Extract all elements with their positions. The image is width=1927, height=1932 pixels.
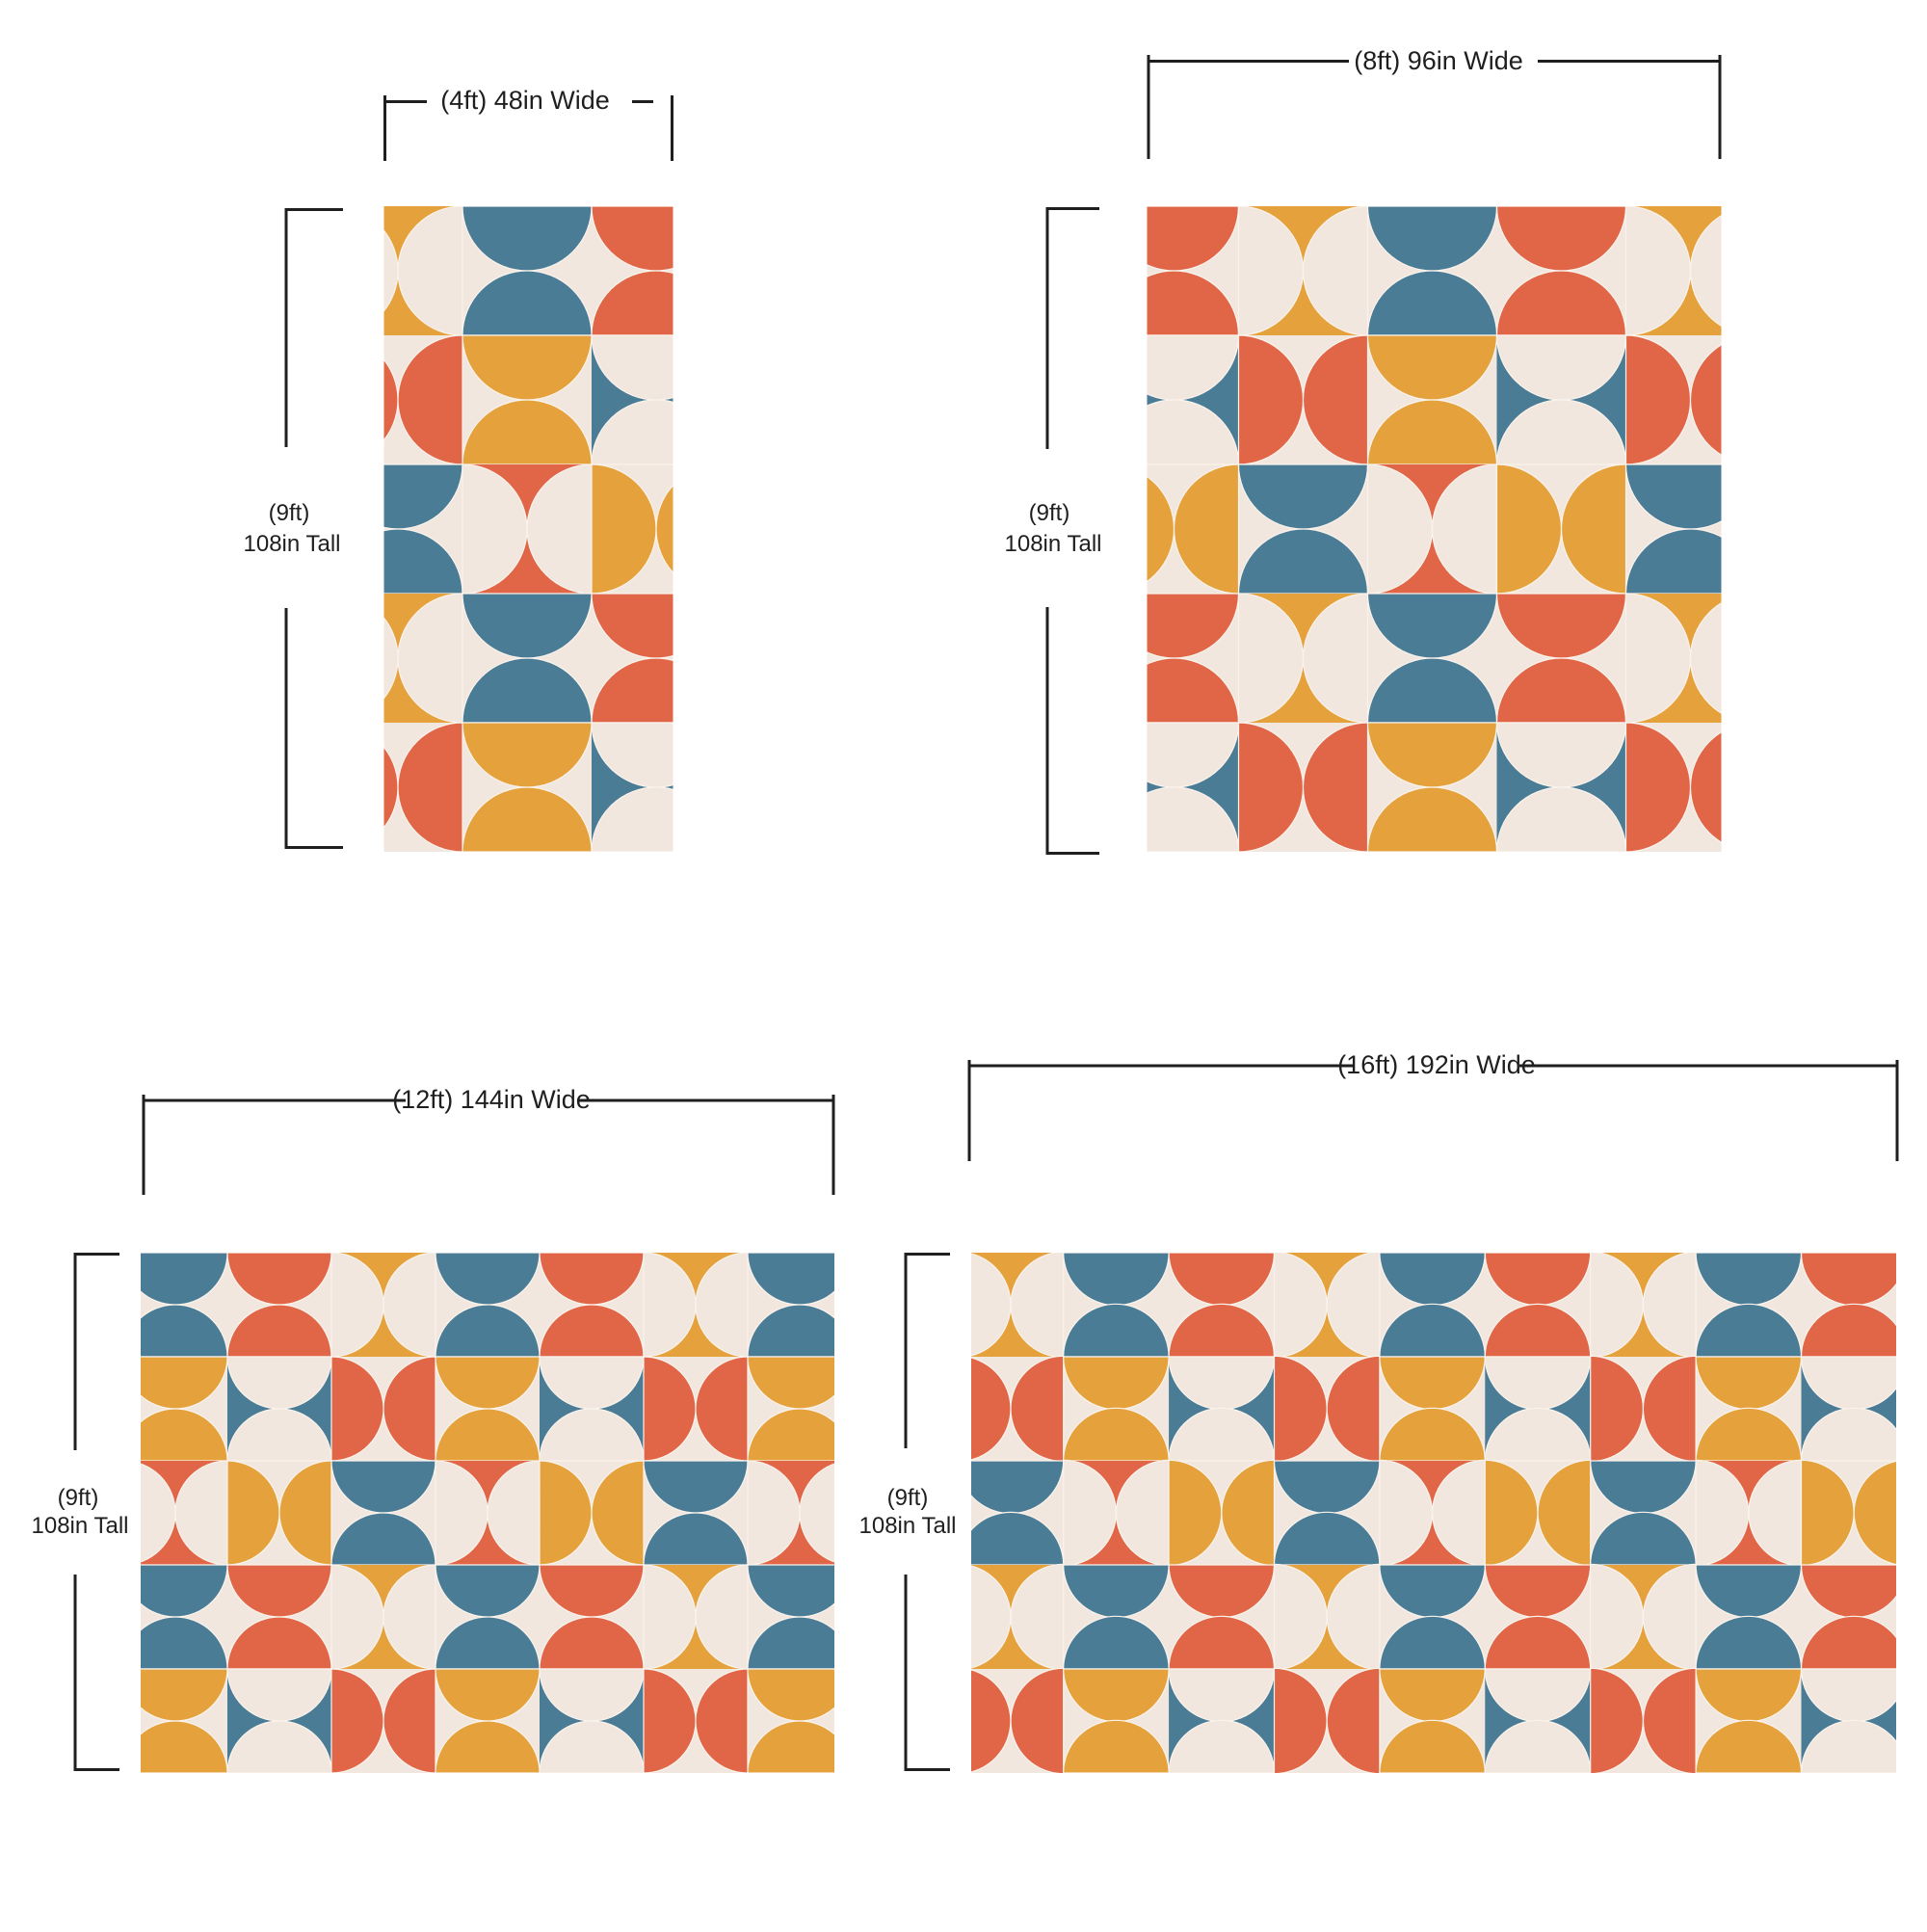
svg-text:108in Tall: 108in Tall [244, 531, 341, 557]
svg-text:(16ft) 192in Wide: (16ft) 192in Wide [1337, 1050, 1536, 1079]
svg-text:(4ft) 48in Wide: (4ft) 48in Wide [440, 86, 610, 115]
svg-text:(9ft): (9ft) [269, 500, 310, 526]
svg-text:(9ft): (9ft) [58, 1485, 99, 1511]
svg-text:108in Tall: 108in Tall [1005, 531, 1102, 557]
svg-text:(9ft): (9ft) [887, 1485, 929, 1511]
svg-text:108in Tall: 108in Tall [32, 1513, 129, 1539]
svg-text:(8ft) 96in Wide: (8ft) 96in Wide [1354, 46, 1523, 75]
svg-text:(9ft): (9ft) [1029, 500, 1070, 526]
svg-text:108in Tall: 108in Tall [859, 1513, 957, 1539]
svg-text:(12ft) 144in Wide: (12ft) 144in Wide [392, 1085, 591, 1114]
